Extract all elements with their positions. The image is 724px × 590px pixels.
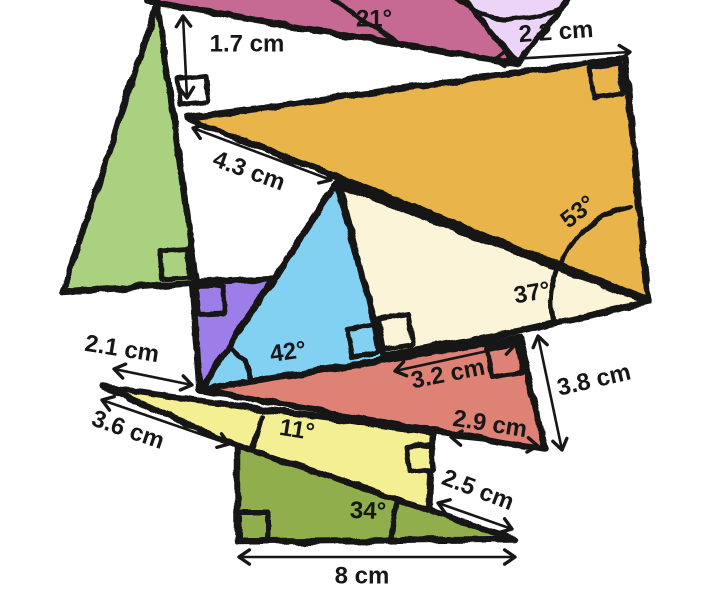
label-angle-42: 42° [268,336,308,368]
right-angle-marker-olive [240,512,268,540]
label-2-2-cm: 2.2 cm [518,16,594,48]
label-2-1-cm: 2.1 cm [83,330,161,368]
right-angle-marker-white-1-7 [178,76,208,105]
triangle-pink [138,0,517,64]
label-8-cm: 8 cm [335,563,390,590]
right-angle-marker-cream [378,314,413,349]
right-angle-marker-purple [196,286,225,314]
label-3-8-cm: 3.8 cm [555,358,634,401]
triangles-layer [63,0,648,542]
label-angle-21: 21° [356,6,392,33]
label-angle-34: 34° [349,497,386,525]
right-angle-marker-orange [590,64,623,98]
right-angle-marker-blue [347,325,379,357]
label-angle-11: 11° [278,414,317,446]
dim-arrow-2-1-cm [114,369,192,385]
label-1-7-cm: 1.7 cm [210,31,285,58]
right-angle-marker-yellow [406,444,434,472]
geometry-diagram-svg: 21°2.2 cm1.7 cm4.3 cm53°37°42°2.1 cm3.6 … [0,0,724,590]
geometry-diagram: 21°2.2 cm1.7 cm4.3 cm53°37°42°2.1 cm3.6 … [0,0,724,590]
right-angle-marker-green [160,249,190,279]
